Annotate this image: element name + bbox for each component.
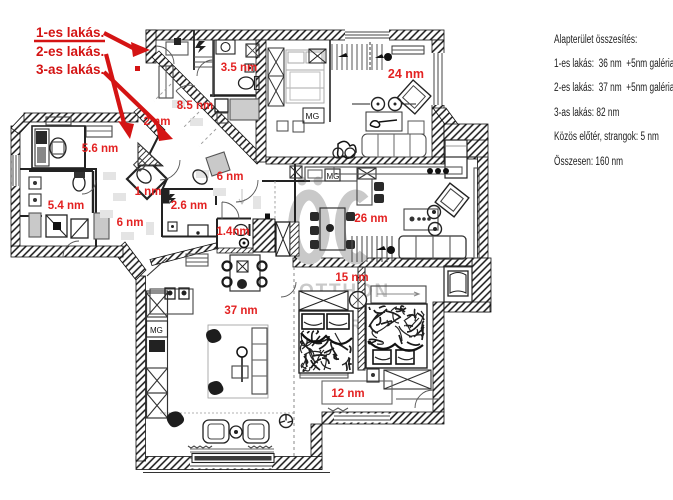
svg-text:MG: MG <box>327 172 340 181</box>
svg-text:1-es lakás.: 1-es lakás. <box>36 25 104 40</box>
svg-text:1 nm: 1 nm <box>135 186 162 198</box>
svg-text:2-es lakás.: 2-es lakás. <box>36 44 104 59</box>
svg-text:8.5 nm: 8.5 nm <box>177 100 213 112</box>
svg-text:37 nm: 37 nm <box>224 305 257 317</box>
svg-text:1.4nm: 1.4nm <box>216 226 249 238</box>
svg-text:26 nm: 26 nm <box>354 213 387 225</box>
svg-text:3-as lakás.: 3-as lakás. <box>36 62 104 77</box>
svg-text:MG: MG <box>150 326 163 335</box>
svg-text:MG: MG <box>306 111 320 121</box>
svg-text:6 nm: 6 nm <box>217 171 244 183</box>
svg-text:5.6 nm: 5.6 nm <box>82 143 118 155</box>
svg-text:15 nm: 15 nm <box>335 272 368 284</box>
svg-text:3.5 nm: 3.5 nm <box>221 62 257 74</box>
svg-text:2.6 nm: 2.6 nm <box>171 200 207 212</box>
svg-text:12 nm: 12 nm <box>331 388 364 400</box>
svg-text:5.4 nm: 5.4 nm <box>48 200 84 212</box>
svg-text:6 nm: 6 nm <box>117 217 144 229</box>
svg-text:24 nm: 24 nm <box>388 67 424 81</box>
